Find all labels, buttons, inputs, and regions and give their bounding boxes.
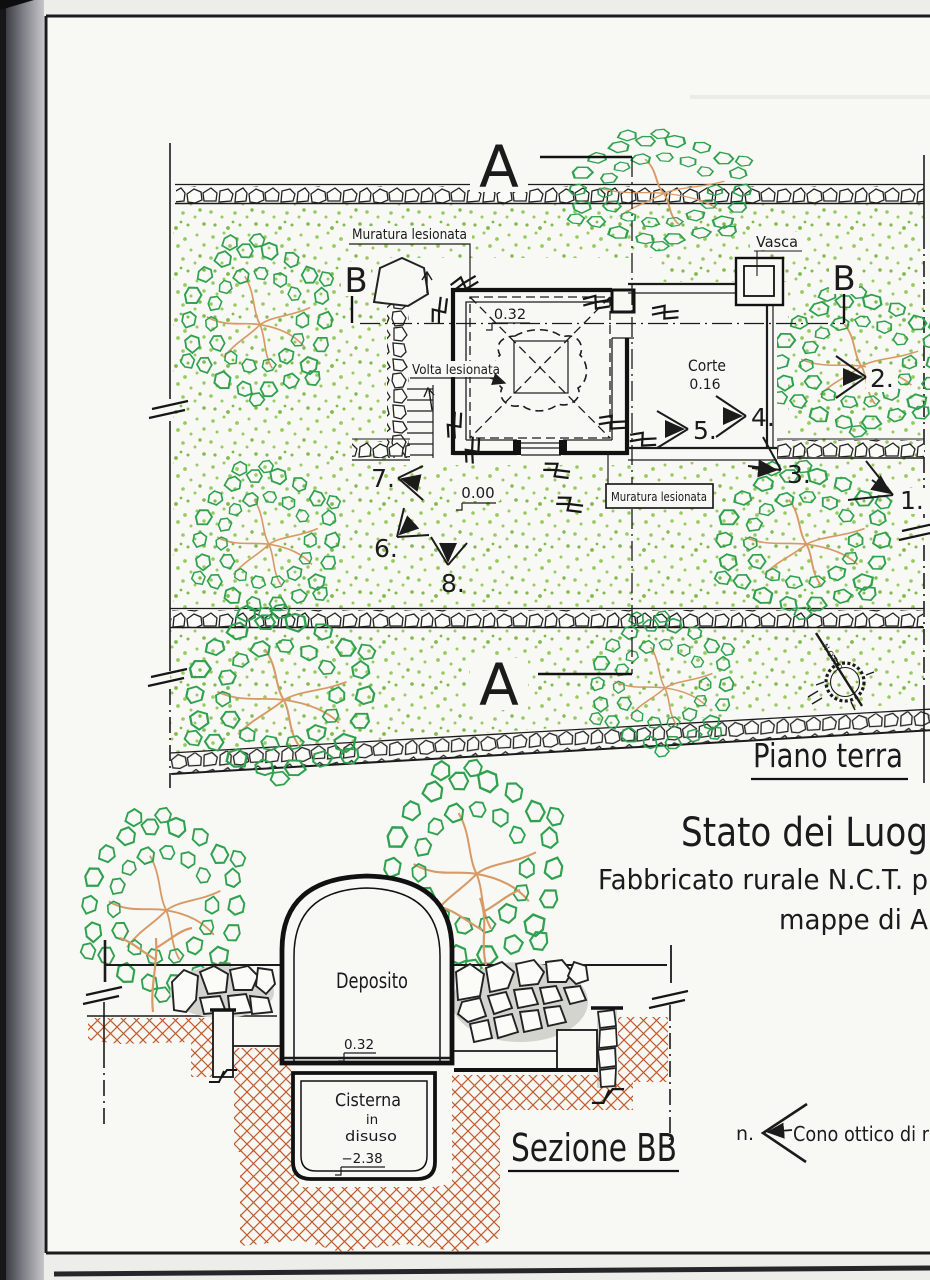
cone-5: 5. bbox=[693, 416, 717, 445]
cone-8: 8. bbox=[441, 569, 465, 598]
ground-level: 0.00 bbox=[461, 484, 494, 502]
post-left bbox=[213, 1010, 233, 1077]
page-curl-shadow bbox=[6, 0, 44, 1280]
muratura-lesionata-box-label: Muratura lesionata bbox=[611, 489, 707, 504]
marker-a-bottom: A bbox=[479, 651, 519, 719]
scanned-drawing-page: Muratura lesionata Volta lesionata Murat… bbox=[0, 0, 930, 1280]
vasca-basin bbox=[736, 258, 783, 305]
corte-label: Corte bbox=[688, 356, 726, 375]
legend-index: n. bbox=[736, 1123, 754, 1145]
building-level: 0.32 bbox=[494, 307, 526, 323]
rock-pile-left bbox=[172, 966, 275, 1014]
cone-3: 3. bbox=[787, 460, 811, 489]
drawing-subtitle-2: mappe di A bbox=[779, 903, 928, 936]
vasca-label: Vasca bbox=[756, 233, 798, 251]
cone-6: 6. bbox=[374, 534, 398, 563]
volta-lesionata-label: Volta lesionata bbox=[412, 363, 500, 378]
rock-column-right bbox=[598, 1010, 617, 1087]
section-caption: Sezione BB bbox=[511, 1126, 677, 1170]
cone-1: 1. bbox=[900, 486, 924, 515]
cisterna-label: Cisterna bbox=[335, 1090, 401, 1111]
stone-retaining-wall-right bbox=[777, 440, 924, 457]
deposito-label: Deposito bbox=[336, 969, 408, 993]
legend-label: Cono ottico di r bbox=[793, 1122, 930, 1146]
corte-level: 0.16 bbox=[689, 377, 720, 393]
drawing-title: Stato dei Luog bbox=[681, 810, 928, 856]
cisterna-label-3: disuso bbox=[345, 1129, 397, 1145]
drawing-subtitle: Fabbricato rurale N.C.T. p bbox=[598, 863, 928, 896]
cone-4: 4. bbox=[751, 403, 775, 432]
drawing-canvas: Muratura lesionata Volta lesionata Murat… bbox=[0, 0, 930, 1280]
muratura-lesionata-label: Muratura lesionata bbox=[352, 227, 467, 243]
deposito-building: Deposito 0.32 bbox=[282, 876, 452, 1063]
cisterna-level: −2.38 bbox=[341, 1151, 382, 1167]
cone-2: 2. bbox=[870, 364, 894, 393]
stone-retaining-wall-left bbox=[352, 441, 410, 458]
stone-wall-band-top bbox=[175, 185, 924, 204]
excavation-step bbox=[557, 1030, 597, 1070]
deposito-floor-level: 0.32 bbox=[344, 1037, 374, 1053]
plan-caption: Piano terra bbox=[753, 736, 903, 775]
cone-7: 7. bbox=[371, 464, 395, 493]
marker-b-right: B bbox=[832, 259, 855, 299]
scanner-edge bbox=[0, 0, 6, 1280]
cisterna-label-2: in bbox=[366, 1112, 378, 1128]
site-plan: Muratura lesionata Volta lesionata Murat… bbox=[148, 129, 930, 788]
marker-a-top: A bbox=[479, 133, 519, 201]
marker-b-left: B bbox=[344, 261, 367, 301]
cisterna: Cisterna in disuso −2.38 bbox=[293, 1073, 435, 1179]
